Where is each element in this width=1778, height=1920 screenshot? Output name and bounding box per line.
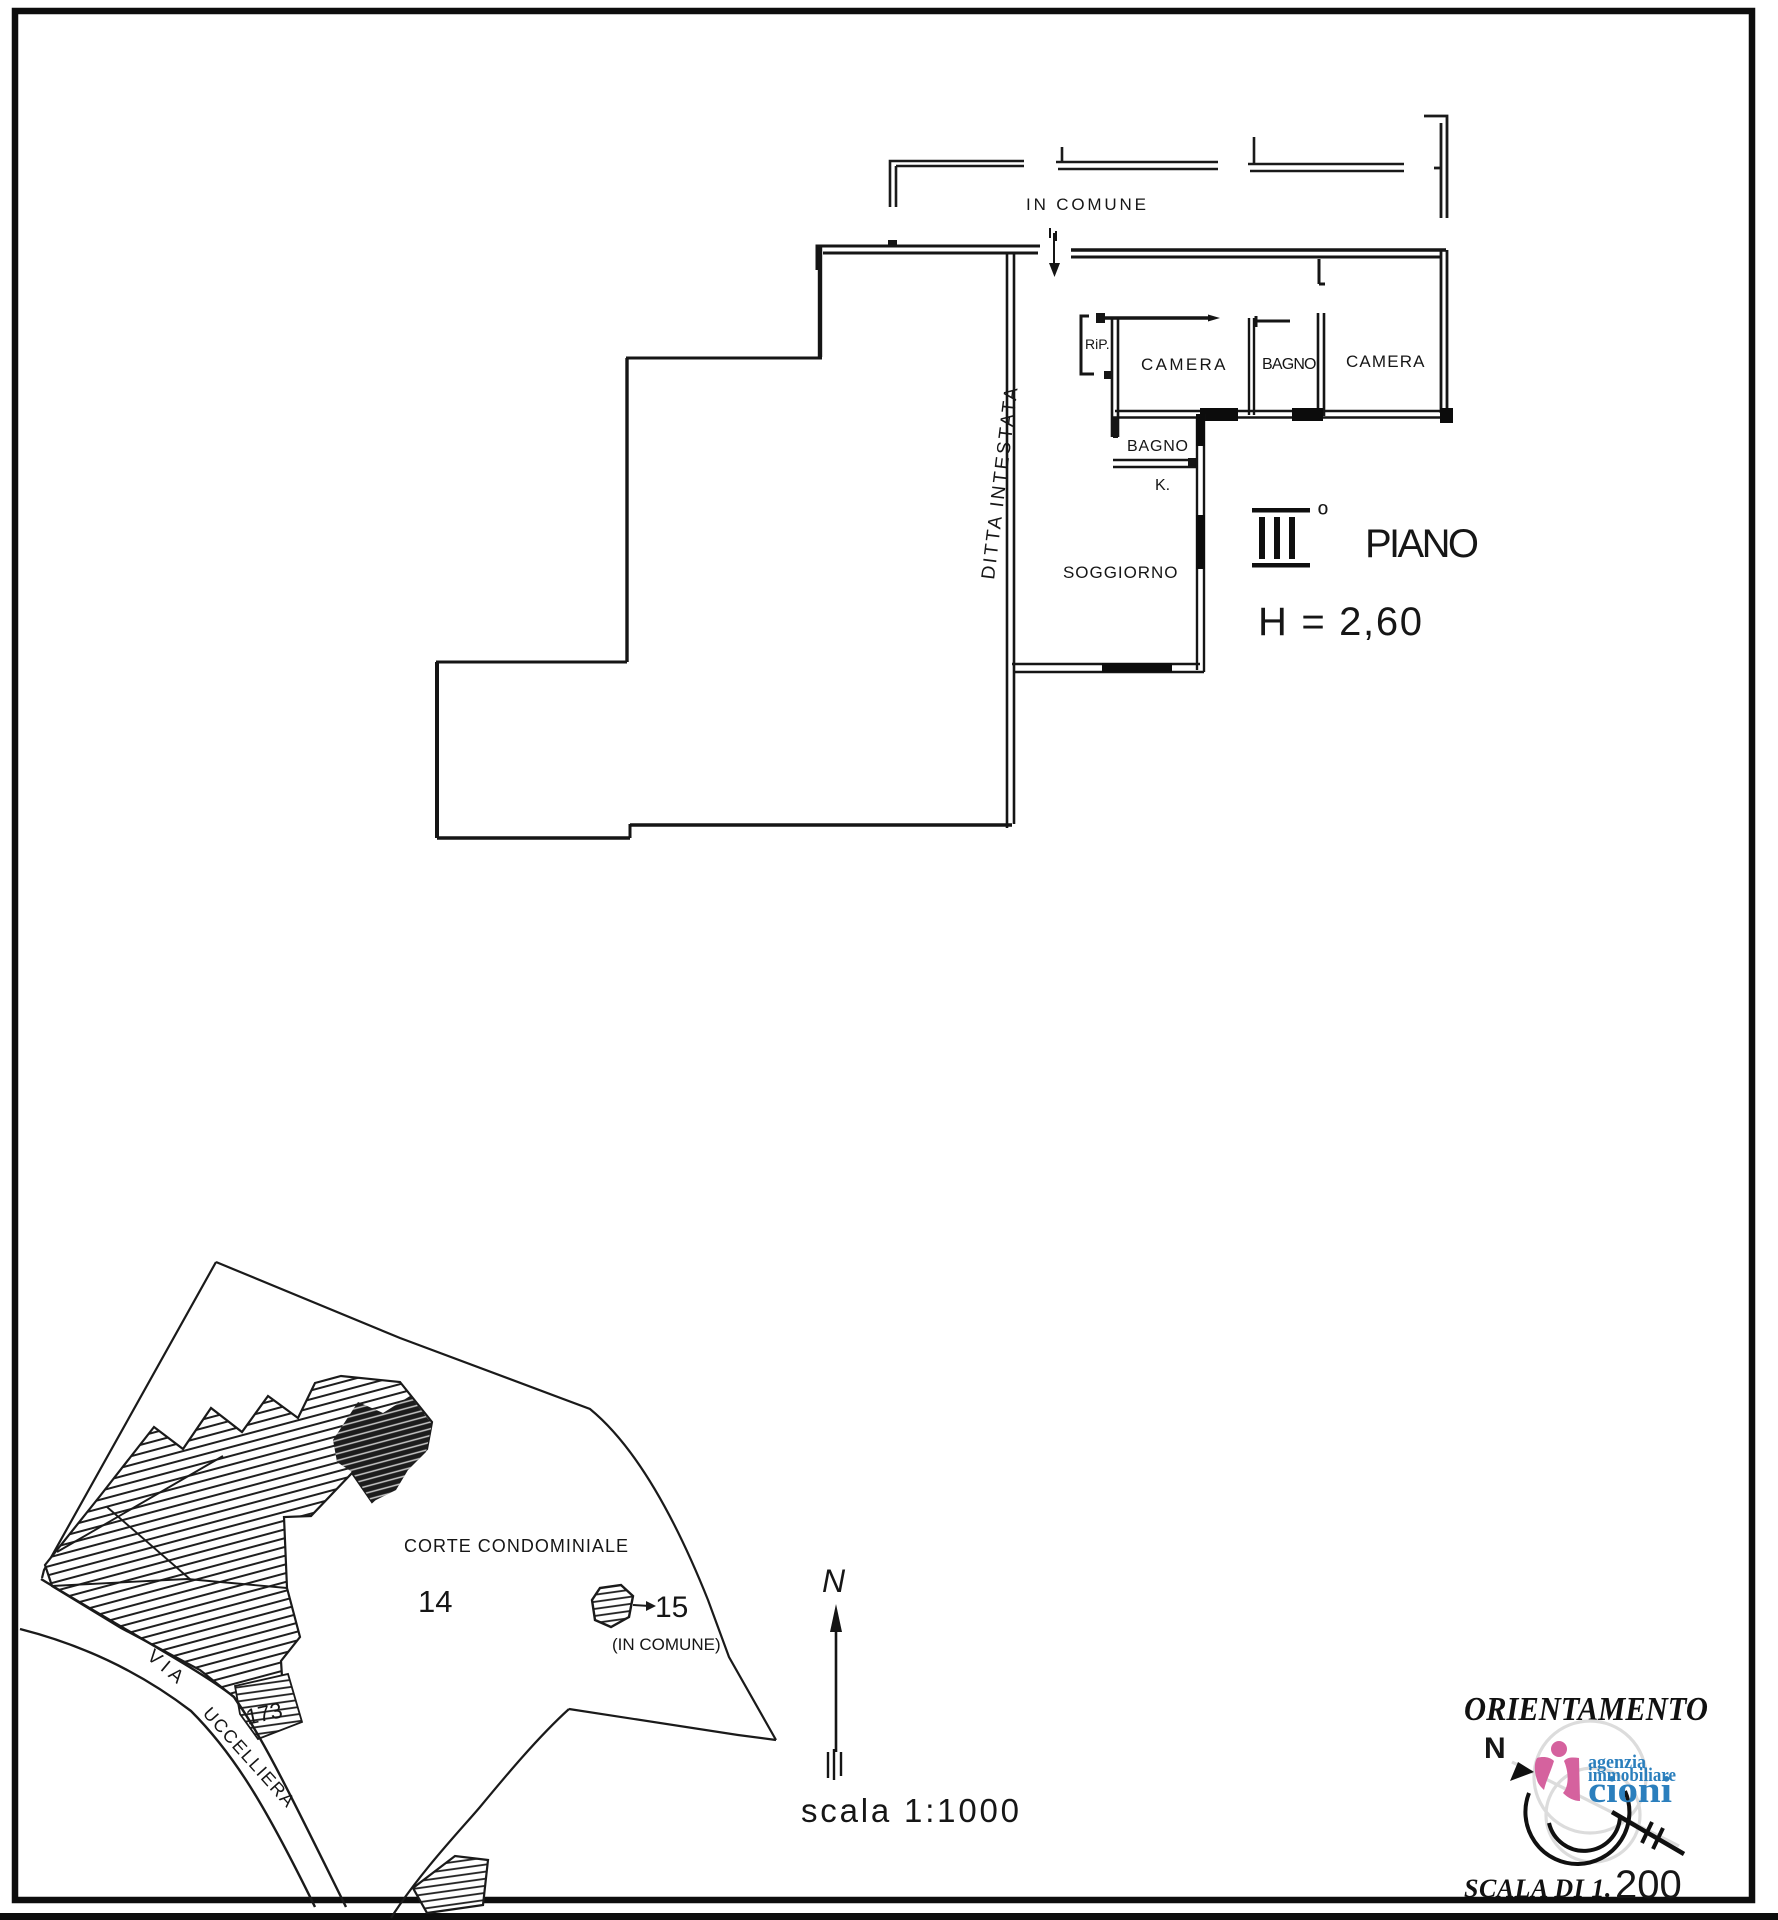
svg-text:SCALA DI 1.: SCALA DI 1. — [1464, 1874, 1612, 1903]
svg-text:15: 15 — [655, 1591, 688, 1624]
svg-text:CAMERA: CAMERA — [1141, 355, 1227, 374]
svg-text:14: 14 — [418, 1584, 452, 1619]
svg-text:PIANO: PIANO — [1365, 522, 1479, 566]
svg-text:RiP.: RiP. — [1085, 336, 1110, 352]
svg-text:CORTE CONDOMINIALE: CORTE CONDOMINIALE — [404, 1536, 630, 1556]
svg-text:IN COMUNE: IN COMUNE — [1026, 195, 1148, 214]
svg-text:BAGNO: BAGNO — [1127, 438, 1189, 455]
svg-text:H = 2,60: H = 2,60 — [1258, 600, 1422, 644]
svg-text:K.: K. — [1155, 477, 1170, 494]
svg-text:200: 200 — [1615, 1863, 1682, 1907]
svg-text:cioni: cioni — [1588, 1770, 1672, 1811]
svg-text:CAMERA: CAMERA — [1346, 352, 1426, 371]
svg-text:scala 1:1000: scala 1:1000 — [801, 1792, 1019, 1829]
svg-text:º: º — [1318, 499, 1328, 529]
svg-text:SOGGIORNO: SOGGIORNO — [1063, 563, 1179, 582]
svg-text:DITTA INTESTATA: DITTA INTESTATA — [978, 384, 1023, 581]
svg-text:(IN COMUNE): (IN COMUNE) — [612, 1635, 721, 1654]
svg-text:BAGNO: BAGNO — [1262, 356, 1317, 373]
svg-text:N: N — [1484, 1732, 1506, 1765]
svg-text:N: N — [822, 1563, 846, 1599]
